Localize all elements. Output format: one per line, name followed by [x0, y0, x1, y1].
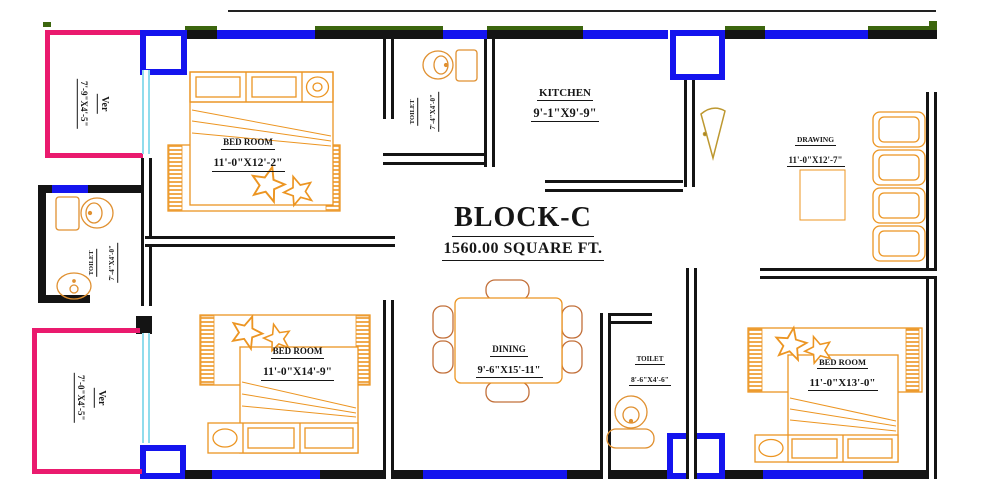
block-name: BLOCK-C [452, 200, 594, 237]
bed-bottom-right [748, 325, 922, 462]
room-dims: 8'-6"X4'-6" [629, 375, 671, 386]
room-dims: 11'-0"X14'-9" [261, 365, 334, 381]
room-dims: 7'-0"X4'-5" [73, 373, 86, 423]
room-label-dining: DINING 9'-6"X15'-11" [455, 338, 563, 380]
room-label-verandah-bottom: Ver 7'-0"X4'-5" [71, 363, 113, 433]
room-label-toilet-top: TOILET 7'-4"X4'-0" [400, 82, 442, 142]
room-dims: 9'-6"X15'-11" [476, 364, 543, 379]
room-name: Ver [97, 94, 111, 113]
room-dims: 11'-0"X12'-2" [212, 156, 285, 172]
room-dims: 9'-1"X9'-9" [531, 105, 598, 122]
room-dims: 7'-4"X4'-0" [429, 92, 439, 131]
room-name: KITCHEN [537, 86, 593, 101]
floor-plan: BED ROOM 11'-0"X12'-2" TOILET 7'-4"X4'-0… [0, 0, 1000, 500]
room-dims: 7'-9"X4'-5" [76, 79, 89, 129]
room-dims: 7'-4"X4'-0" [108, 243, 118, 282]
door-leaf [701, 108, 725, 158]
room-name: Ver [94, 388, 108, 407]
room-name: DINING [490, 344, 528, 357]
bed-bottom-left [200, 311, 370, 453]
room-name: BED ROOM [817, 357, 868, 369]
room-label-toilet-bottom: TOILET 8'-6"X4'-6" [608, 347, 692, 389]
room-label-drawing: DRAWING 11'-0"X12'-7" [763, 128, 868, 170]
block-area: 1560.00 SQUARE FT. [442, 239, 605, 261]
room-name: TOILET [635, 355, 666, 365]
room-name: TOILET [88, 248, 97, 277]
room-dims: 11'-0"X12'-7" [787, 155, 845, 168]
room-label-toilet-left: TOILET 7'-4"X4'-0" [79, 233, 121, 293]
room-name: DRAWING [795, 135, 836, 146]
room-label-bedroom1: BED ROOM 11'-0"X12'-2" [192, 131, 304, 173]
room-label-bedroom2: BED ROOM 11'-0"X14'-9" [240, 340, 355, 382]
room-name: TOILET [409, 97, 418, 126]
toilet-top-fixture [423, 50, 477, 81]
room-label-bedroom3: BED ROOM 11'-0"X13'-0" [790, 351, 895, 393]
plan-title: BLOCK-C 1560.00 SQUARE FT. [408, 200, 638, 261]
room-name: BED ROOM [271, 346, 325, 359]
toilet-bottom-fixture [607, 396, 654, 448]
room-label-verandah-top: Ver 7'-9"X4'-5" [74, 71, 116, 137]
room-dims: 11'-0"X13'-0" [808, 376, 878, 391]
room-label-kitchen: KITCHEN 9'-1"X9'-9" [515, 82, 615, 124]
room-name: BED ROOM [221, 137, 275, 150]
